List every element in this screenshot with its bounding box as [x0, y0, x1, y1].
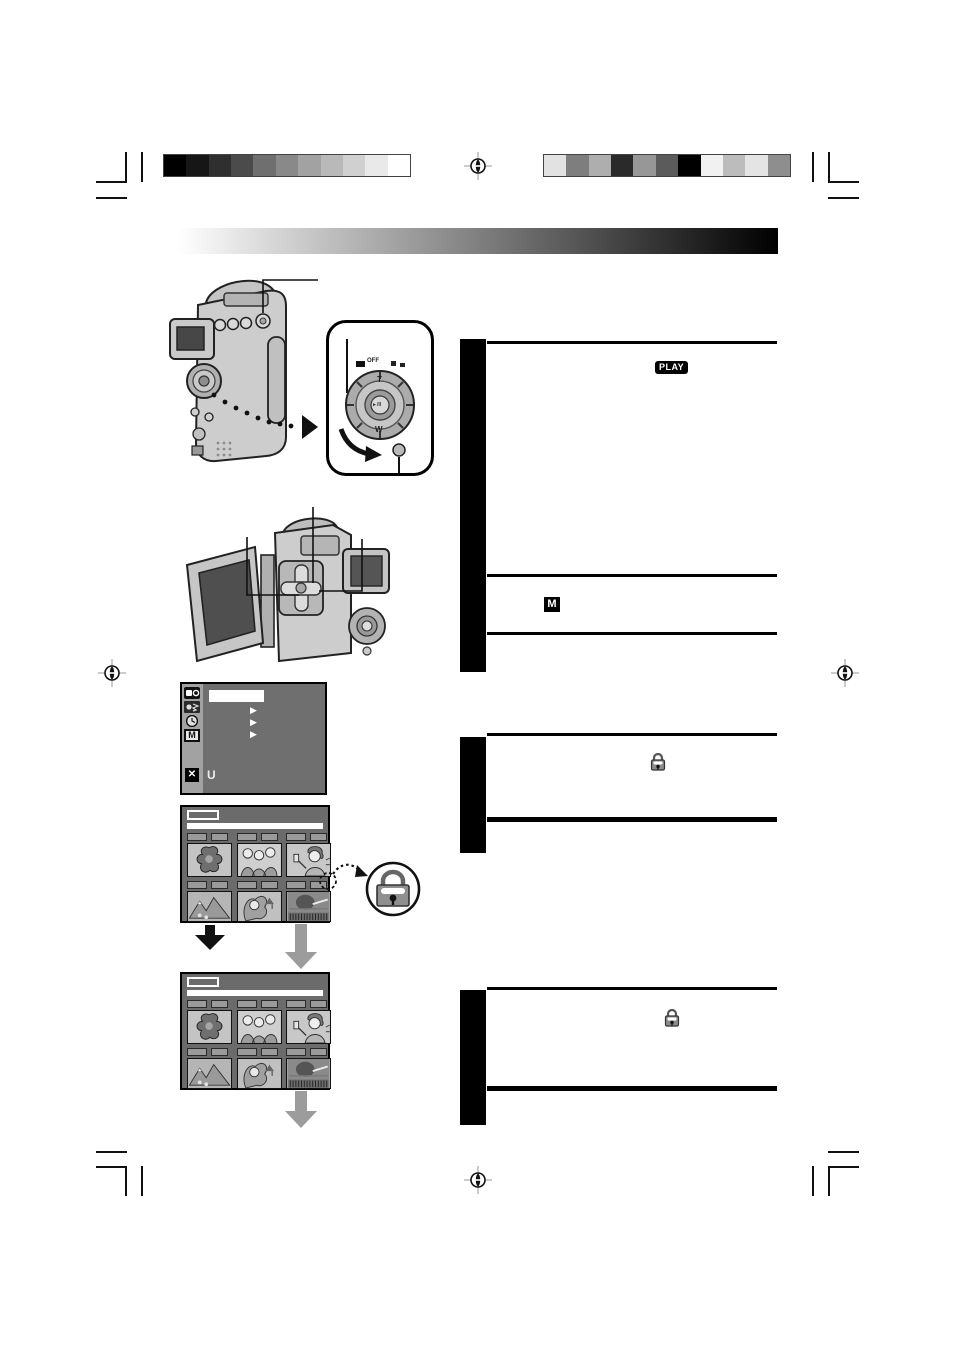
top-button	[228, 319, 239, 330]
step-section-bar-1	[460, 339, 486, 672]
crop-mark	[828, 1166, 859, 1168]
calibration-cell	[164, 155, 186, 176]
video-mode-icon	[391, 361, 396, 366]
dashed-callout-arrow	[318, 856, 370, 896]
clock-icon	[184, 715, 200, 727]
thumbnail-person-field	[237, 891, 282, 922]
black-down-arrow	[193, 925, 227, 951]
calibration-cell	[186, 155, 208, 176]
calibration-cell	[566, 155, 588, 176]
crop-mark	[125, 152, 127, 182]
dial-wide-label: W	[375, 425, 383, 434]
calibration-cell	[768, 155, 790, 176]
effects-icon	[184, 701, 200, 713]
crop-mark	[141, 152, 143, 182]
calibration-cell	[678, 155, 700, 176]
calibration-cell	[231, 155, 253, 176]
crop-mark	[828, 152, 830, 182]
crop-mark	[828, 1166, 830, 1196]
thumbnail-index-screen-1	[180, 805, 330, 923]
calibration-cell	[723, 155, 745, 176]
grip-strap	[268, 337, 285, 423]
still-mode-icon	[400, 363, 405, 367]
crop-mark	[812, 1166, 814, 1196]
calibration-cell	[544, 155, 566, 176]
crop-mark	[96, 197, 127, 199]
thumbnail-mountains	[187, 891, 232, 922]
gray-down-arrow	[283, 924, 319, 970]
submenu-arrow-icon: ▶	[250, 730, 257, 739]
camera-icon	[184, 687, 200, 699]
horizontal-rule	[487, 987, 777, 990]
thumbnail-flower	[187, 843, 232, 877]
dial-off-label: OFF	[367, 358, 379, 364]
index-title-box	[187, 977, 219, 987]
index-header-bar	[187, 990, 323, 996]
index-title-box	[187, 810, 219, 820]
thumbnail-index-screen-2	[180, 972, 330, 1090]
section-header-gradient-bar	[178, 228, 778, 254]
horizontal-rule	[487, 632, 777, 635]
crop-mark	[96, 1151, 127, 1153]
calibration-cell	[276, 155, 298, 176]
set-button	[296, 583, 306, 593]
calibration-cell	[388, 155, 410, 176]
calibration-cell	[209, 155, 231, 176]
horizontal-rule	[487, 574, 777, 577]
step-section-bar-2	[460, 737, 486, 853]
top-button	[215, 320, 226, 331]
calibration-strip-right	[543, 154, 791, 177]
thumbnail-flower	[187, 1010, 232, 1044]
crop-mark	[828, 197, 859, 199]
thumbnail-sunset	[286, 1058, 331, 1089]
dial-tele-label: T	[377, 375, 382, 384]
calibration-cell	[633, 155, 655, 176]
top-button	[241, 318, 252, 329]
crop-mark	[828, 181, 859, 183]
thumbnail-woman	[286, 1010, 331, 1044]
dial-center-glyph: ►/II	[372, 402, 381, 408]
calibration-cell	[321, 155, 343, 176]
calibration-strip-left	[163, 154, 411, 177]
padlock-icon	[364, 860, 422, 918]
thumbnail-mountains	[187, 1058, 232, 1089]
calibration-cell	[656, 155, 678, 176]
calibration-cell	[611, 155, 633, 176]
crop-mark	[828, 1151, 859, 1153]
horizontal-rule	[487, 1086, 777, 1091]
thumbnail-person-field	[237, 1058, 282, 1089]
manual-page: OFF T W ►/II M ▶ ▶	[0, 0, 954, 1350]
menu-selected-item-bar	[209, 690, 264, 702]
padlock-icon	[664, 1008, 680, 1027]
horizontal-rule	[487, 733, 777, 736]
calibration-cell	[298, 155, 320, 176]
speaker-grille	[217, 442, 232, 457]
index-header-bar	[187, 823, 323, 829]
gray-down-arrow	[283, 1091, 319, 1129]
return-icon: U	[207, 768, 216, 782]
pointer-triangle	[302, 415, 318, 439]
crop-mark	[125, 1166, 127, 1196]
submenu-arrow-icon: ▶	[250, 706, 257, 715]
registration-mark	[831, 659, 859, 687]
padlock-icon	[650, 752, 666, 771]
crop-mark	[812, 152, 814, 182]
horizontal-rule	[487, 817, 777, 822]
horizontal-rule	[487, 341, 777, 344]
calibration-cell	[365, 155, 387, 176]
camcorder-rear-illustration	[168, 263, 320, 478]
lcd-menu-screen: M ▶ ▶ ▶ ✕ U	[180, 682, 327, 795]
camcorder-lcd-open-illustration	[183, 503, 395, 665]
play-mode-badge: PLAY	[655, 361, 688, 374]
lock-button	[393, 444, 405, 456]
registration-mark	[464, 1166, 492, 1194]
registration-mark	[98, 659, 126, 687]
play-mode-mark	[356, 361, 365, 367]
crop-mark	[96, 1166, 127, 1168]
thumbnail-group	[237, 843, 282, 877]
thumbnail-group	[237, 1010, 282, 1044]
memory-icon: M	[184, 729, 200, 742]
registration-mark	[464, 152, 492, 180]
calibration-cell	[253, 155, 275, 176]
step-section-bar-3	[460, 990, 486, 1125]
memory-mode-badge: M	[544, 597, 560, 612]
calibration-cell	[343, 155, 365, 176]
crop-mark	[141, 1166, 143, 1196]
dial-callout: OFF T W ►/II	[326, 320, 434, 476]
close-icon: ✕	[185, 768, 199, 782]
calibration-cell	[589, 155, 611, 176]
calibration-cell	[745, 155, 767, 176]
crop-mark	[96, 181, 127, 183]
calibration-cell	[701, 155, 723, 176]
submenu-arrow-icon: ▶	[250, 718, 257, 727]
